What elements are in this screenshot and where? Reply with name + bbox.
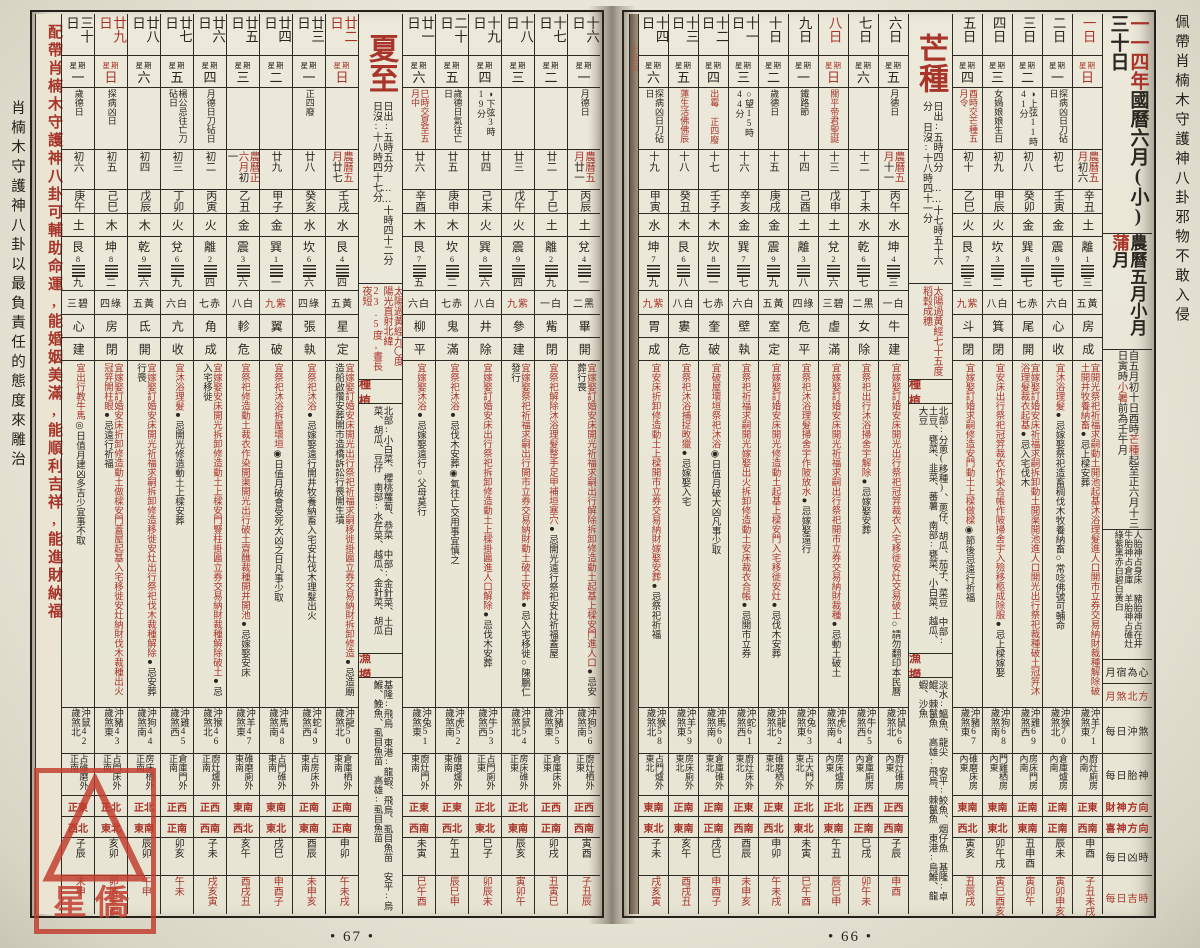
lunar-day: 初九	[992, 151, 1003, 172]
solar-term-block: 夏至日出:五時五分 ……十時四十二分 日沒:十八時四十七分太陽過黃經九〇度 陽光…	[358, 14, 402, 914]
fishing-header: 漁撈	[909, 654, 952, 678]
weekday-cell: 星期三	[729, 56, 758, 88]
ji-text: ●忌上樑嫁娶	[993, 620, 1003, 678]
jianchu-cell: 開	[128, 338, 160, 361]
trigram-name: 震	[237, 238, 249, 255]
bad-hours-cell: 寅酉	[568, 838, 600, 876]
wealth-god-cell: 正北	[789, 796, 818, 817]
trigram-sub-number: 七	[1023, 279, 1033, 289]
extra-note-text: ◎日值月建凶多吉少宜事不取	[74, 420, 84, 545]
nine-star-cell: 七赤	[436, 291, 468, 315]
fetal-god-cell: 倉庫門外正南	[161, 754, 193, 796]
ji-text: ●忌嫁娶安床	[239, 620, 249, 678]
weekday-label: 星期	[735, 60, 752, 71]
solar-term-times: 日出:五時四分 ……十七時五十六分 日沒:十八時四十一分	[920, 101, 941, 271]
trigram-cell: 兌2六	[819, 237, 848, 291]
header-label-column: 一一四年國曆六月(小)三十日農曆五月小月蒲月自五月初十日酉時芒種起至正六月十三日…	[1102, 14, 1152, 914]
weekday-label: 星期	[1049, 60, 1066, 71]
national-calendar-title: 一一四年國曆六月(小)三十日	[1103, 14, 1152, 234]
jianchu-cell: 成	[1073, 338, 1102, 361]
row-label: 財神方向	[1103, 796, 1152, 817]
bad-hours-cell: 巳子	[469, 838, 501, 876]
element-cell: 土	[789, 214, 818, 237]
mansion-cell: 氐	[128, 315, 160, 338]
day-number-cell: 十六日	[568, 14, 600, 56]
lunar-month-title: 農曆五月小月蒲月	[1103, 234, 1152, 350]
wealth-god-value: 東南	[644, 799, 664, 814]
trigram-number: 6	[681, 255, 685, 264]
nine-star-cell: 一白	[879, 291, 908, 315]
trigram-number: 2	[831, 255, 835, 264]
bad-hours-cell: 未寅	[789, 838, 818, 876]
festival-note-cell: 鐵路節	[789, 88, 818, 150]
mansion-cell: 星	[326, 315, 358, 338]
weekday-label: 星期	[1019, 60, 1036, 71]
joy-god-value: 東北	[644, 820, 664, 835]
fetal-god-cell: 倉庫爐房內南	[1043, 754, 1072, 796]
day-column: 二日星期一探病凶日刀砧日初七壬寅金震9七六白心收宜沐浴理髮●忌嫁娶祭祀造畜稠伐木…	[1042, 14, 1072, 914]
trigram-cell: 坎3二	[983, 237, 1012, 291]
wealth-god-value: 正西	[574, 799, 594, 814]
joy-god-value: 西北	[958, 820, 978, 835]
trigram-name: 艮	[72, 238, 84, 255]
nine-star-cell: 二黑	[849, 291, 878, 315]
wealth-god-value: 正東	[1078, 799, 1098, 814]
element-cell: 火	[953, 214, 982, 237]
hexagram-icon	[237, 265, 250, 278]
joy-god-value: 西北	[764, 820, 784, 835]
weekday-label: 星期	[136, 60, 153, 71]
joy-god-cell: 東北	[983, 817, 1012, 838]
clash-cell: 沖鼠42歲煞北	[62, 708, 94, 754]
mansion-cell: 心	[62, 315, 94, 338]
joy-god-value: 正南	[541, 820, 561, 835]
element-cell: 火	[469, 214, 501, 237]
ji-text: ●忌入宅伐木	[1019, 430, 1029, 488]
clash-cell: 沖豬43歲煞東	[95, 708, 127, 754]
weekday-label: 星期	[765, 60, 782, 71]
element-cell: 火	[502, 214, 534, 237]
row-label: 每日胎神	[1103, 754, 1152, 796]
term-range-note: 自五月初十日酉時芒種起至正六月十三日寅時小暑前為壬午月	[1103, 350, 1152, 530]
ganzhi-cell: 丙寅	[194, 190, 226, 214]
weekday-label: 星期	[103, 60, 120, 71]
day-column: 九日星期一鐵路節十四己酉土離3八四綠危平宜祭祀沐浴理髮掃舍宇作陂放水●忌嫁娶遠行…	[788, 14, 818, 914]
ganzhi-cell: 辛丑	[1073, 190, 1102, 214]
bad-hours-cell: 寅亥	[953, 838, 982, 876]
trigram-cell: 震9四	[502, 237, 534, 291]
ji-text: ●忌祭祀祈福	[649, 582, 659, 640]
festival-note-cell	[128, 88, 160, 150]
weekday-label: 星期	[543, 60, 560, 71]
clash-cell: 沖雞69歲煞西	[1013, 708, 1042, 754]
festival-note-cell: 探病凶日	[95, 88, 127, 150]
element-cell: 木	[699, 214, 728, 237]
lunar-date-cell: 初六	[62, 150, 94, 190]
joy-god-value: 西南	[200, 820, 220, 835]
weekday-cell: 星期三	[227, 56, 259, 88]
lunar-day: 廿七	[331, 162, 342, 183]
joy-god-cell: 西北	[759, 817, 788, 838]
good-hours-cell: 申酉子	[260, 876, 292, 918]
nine-star-value: 八白	[673, 295, 695, 310]
mansion-cell: 鬼	[436, 315, 468, 338]
day-column: 廿五日星期三農曆正六月初一乙丑金震3六八白軫危宜祭祀修造動土裁衣作染開渠開光出行…	[226, 14, 259, 914]
fetal-god-cell: 占門爐外東北	[639, 754, 668, 796]
joy-god-value: 東北	[988, 820, 1008, 835]
yi-text: 宜嫁娶訂婚安床開光修造動土起基上樑安門入宅移徙安灶	[769, 363, 779, 601]
trigram-cell: 坎6二	[436, 237, 468, 291]
element-cell: 金	[227, 214, 259, 237]
weekday-value: 一	[1051, 71, 1064, 84]
trigram-number: 8	[711, 255, 715, 264]
mansion-cell: 張	[293, 315, 325, 338]
hexagram-icon	[961, 265, 974, 278]
trigram-sub-number: 九	[649, 279, 659, 289]
fetal-god-cell: 碓磨栖外東北	[759, 754, 788, 796]
lunar-day: 初三	[172, 151, 183, 172]
trigram-name: 震	[1051, 238, 1063, 255]
day-number-cell: 廿七日	[161, 14, 193, 56]
trigram-cell: 艮8九	[62, 237, 94, 291]
trigram-number: 6	[175, 255, 179, 264]
ganzhi-cell: 乙丑	[227, 190, 259, 214]
bad-hours-cell: 戌巳	[699, 838, 728, 876]
weekday-cell: 星期一	[568, 56, 600, 88]
lunar-date-cell: 廿八	[293, 150, 325, 190]
good-hours-cell: 辰巳申	[436, 876, 468, 918]
day-number-cell: 十七日	[535, 14, 567, 56]
wealth-god-cell: 正南	[699, 796, 728, 817]
planting-header: 種植	[359, 380, 402, 404]
festival-note-cell	[326, 88, 358, 150]
good-hours-cell: 戌亥寅	[639, 876, 668, 918]
auspicious-cell: 宜嫁娶安床開光拆卸修造動土上樑安門豎柱掛匾立券交易納財裁種解除破土●忌入宅移徙	[194, 361, 226, 708]
weekday-cell: 星期日	[1073, 56, 1102, 88]
clash-cell: 沖猴46歲煞北	[194, 708, 226, 754]
nine-star-cell: 九紫	[502, 291, 534, 315]
jianchu-cell: 閉	[953, 338, 982, 361]
nine-star-cell: 六白	[403, 291, 435, 315]
wealth-god-cell: 正西	[535, 796, 567, 817]
nine-star-value: 二黑	[853, 295, 875, 310]
ji-text: ●忌嫁娶遠行	[799, 496, 809, 554]
yi-text: 宜祭祀沐浴理髮掃舍宇作陂放水	[799, 363, 809, 496]
ji-text: ●忌嫁娶安葬	[859, 477, 869, 535]
trigram-sub-number: 九	[172, 279, 182, 289]
lunar-date-cell: 初三	[161, 150, 193, 190]
day-column: 十一日星期三○望15時44分十六辛亥金巽7七六白壁執宜祭祀祈福求嗣開光嫁娶出火拆…	[728, 14, 758, 914]
yi-text: 宜嫁娶訂婚求嗣修造安門動土上樑做樑	[963, 363, 973, 525]
lunar-day: 十九	[648, 151, 659, 172]
mansion-cell: 房	[95, 315, 127, 338]
page-number-66: • 66 •	[828, 929, 873, 946]
weekday-label: 星期	[70, 60, 87, 71]
fetal-god-cell: 廚灶爐外正南	[194, 754, 226, 796]
nine-star-cell: 七赤	[194, 291, 226, 315]
ji-text: ●忌嫁娶入宅	[679, 449, 689, 507]
hexagram-icon	[336, 265, 349, 278]
clash-cell: 沖羊59歲煞東	[669, 708, 698, 754]
wealth-god-value: 正北	[824, 799, 844, 814]
nine-star-value: 八白	[232, 295, 254, 310]
lunar-day: 廿九	[271, 151, 282, 172]
nine-star-value: 六白	[733, 295, 755, 310]
trigram-cell: 艮4四	[326, 237, 358, 291]
lunar-day: 初六	[73, 151, 84, 172]
good-hours-cell: 午未	[161, 876, 193, 918]
joy-god-cell: 西南	[403, 817, 435, 838]
trigram-number: 7	[741, 255, 745, 264]
nine-star-value: 九紫	[265, 295, 287, 310]
clash-cell: 沖雞45歲煞西	[161, 708, 193, 754]
fetal-god-cell: 門雞栖房內東	[983, 754, 1012, 796]
trigram-number: 7	[651, 255, 655, 264]
trigram-sub-number: 七	[859, 279, 869, 289]
element-cell: 土	[819, 214, 848, 237]
right-margin-caption: 佩帶肖楠木守護神八卦邪物不敢入侵	[1171, 14, 1192, 326]
wealth-god-cell: 正西	[849, 796, 878, 817]
festival-note-cell: 蓮生活佛佛辰	[669, 88, 698, 150]
fetal-god-cell: 廚灶床外東北	[729, 754, 758, 796]
trigram-number: 2	[208, 255, 212, 264]
jianchu-cell: 開	[568, 338, 600, 361]
weekday-cell: 星期五	[161, 56, 193, 88]
jianchu-cell: 滿	[819, 338, 848, 361]
ji-text: ●忌嫁娶遠行開井牧養納畜入宅安灶伐木理髮出火	[305, 411, 315, 621]
nine-star-value: 四綠	[100, 295, 122, 310]
weekday-value: 五	[887, 71, 900, 84]
sun-longitude-note: 太陽過黃經七十五度 稻穀成穗	[909, 284, 952, 380]
auspicious-cell: 宜嫁娶訂婚安床開光祈福求嗣拆卸修造移徙安灶出行祭祀伐木裁種解除●忌安葬行喪	[128, 361, 160, 708]
joy-god-value: 東南	[674, 820, 694, 835]
nine-star-value: 八白	[987, 295, 1009, 310]
trigram-cell: 坎6六	[293, 237, 325, 291]
joy-god-value: 西北	[442, 820, 462, 835]
weekday-value: 五	[445, 71, 458, 84]
trigram-number: 1	[274, 255, 278, 264]
weekday-value: 日	[827, 71, 840, 84]
wealth-god-value: 東南	[266, 799, 286, 814]
yi-text: 宜嫁娶安床開光拆卸修造動土上樑安門豎柱掛匾立券交易納財裁種解除破土	[211, 363, 221, 677]
weekday-cell: 星期五	[879, 56, 908, 88]
lunar-day: 初八	[1022, 151, 1033, 172]
joy-god-value: 東南	[824, 820, 844, 835]
clash-cell: 沖狗68歲煞南	[983, 708, 1012, 754]
lunar-day: 廿八	[304, 151, 315, 172]
joy-god-value: 西南	[884, 820, 904, 835]
fetal-god-cell: 廚灶廁房內南	[1073, 754, 1102, 796]
lunar-date-cell: 農曆五月廿一	[568, 150, 600, 190]
day-column: 十四日星期六探病凶日刀砧日十九甲寅水坤7九九紫胃成宜安床折卸修造動土上樑開市立券…	[638, 14, 668, 914]
festival-note-cell: 歲德日氣往亡日	[436, 88, 468, 150]
wealth-god-cell: 正東	[1073, 796, 1102, 817]
trigram-cell: 巽8七	[1013, 237, 1042, 291]
wealth-god-cell: 正南	[1043, 796, 1072, 817]
ji-text: ●忌開市立券	[739, 601, 749, 659]
joy-god-cell: 西北	[953, 817, 982, 838]
wealth-god-value: 正西	[854, 799, 874, 814]
nine-star-cell: 一白	[535, 291, 567, 315]
day-number-cell: 廿五日	[227, 14, 259, 56]
hexagram-icon	[1021, 265, 1034, 278]
weekday-value: 六	[137, 71, 150, 84]
lunar-day: 廿二	[546, 151, 557, 172]
day-number-cell: 廿二日	[326, 14, 358, 56]
fishing-header: 漁撈	[359, 654, 402, 678]
joy-god-cell: 正南	[1043, 817, 1072, 838]
ganzhi-cell: 甲子	[260, 190, 292, 214]
ganzhi-cell: 戊午	[502, 190, 534, 214]
almanac-page-66: 一一四年國曆六月(小)三十日農曆五月小月蒲月自五月初十日酉時芒種起至正六月十三日…	[622, 10, 1156, 918]
weekday-label: 星期	[510, 60, 527, 71]
joy-god-value: 西南	[409, 820, 429, 835]
day-column: 十九日星期四◑下弦3時19分廿四己未火巽8六八白井除宜嫁娶訂婚安床出行祭祀拆卸修…	[468, 14, 501, 914]
nine-star-cell: 九紫	[639, 291, 668, 315]
good-hours-cell: 巳午酉	[789, 876, 818, 918]
weekday-label: 星期	[444, 60, 461, 71]
weekday-label: 星期	[959, 60, 976, 71]
element-cell: 水	[849, 214, 878, 237]
fetal-god-cell: 碓磨爐外東南	[436, 754, 468, 796]
mansion-cell: 壁	[729, 315, 758, 338]
jianchu-cell: 滿	[436, 338, 468, 361]
good-hours-cell: 丑寅巳	[535, 876, 567, 918]
weekday-value: 四	[707, 71, 720, 84]
joy-god-cell: 西北	[227, 817, 259, 838]
trigram-sub-number: 六	[238, 279, 248, 289]
lunar-date-cell: 農曆五月初六	[1073, 150, 1102, 190]
day-number-cell: 十九日	[469, 14, 501, 56]
auspicious-cell: 宜嫁娶訂婚安床開光祈福求嗣出行解除拆卸修造動土起基上樑安門進人口●忌安葬行喪	[568, 361, 600, 708]
yi-text: 宜安床出行祭祀冠笄裁衣作染合帳作陂掃舍宇入殮移柩成除服	[993, 363, 1003, 620]
mansion-cell: 觜	[535, 315, 567, 338]
trigram-sub-number: 九	[73, 279, 83, 289]
trigram-name: 兌	[578, 238, 590, 255]
nine-star-value: 一白	[883, 295, 905, 310]
bad-hours-cell: 午丑	[436, 838, 468, 876]
lunar-date-cell: 十九	[639, 150, 668, 190]
good-hours-cell: 未申亥	[729, 876, 758, 918]
weekday-label: 星期	[477, 60, 494, 71]
yi-text: 宜祭祀解除沐浴理髮整手足甲補垣塞穴	[547, 363, 557, 525]
lunar-date-cell: 十四	[789, 150, 818, 190]
weekday-label: 星期	[989, 60, 1006, 71]
weekday-label: 星期	[576, 60, 593, 71]
solar-term-title: 芒種日出:五時四分 ……十七時五十六分 日沒:十八時四十一分	[909, 14, 952, 284]
trigram-number: 1	[1085, 255, 1089, 264]
lunar-day: 廿五	[447, 151, 458, 172]
solar-term-title: 夏至日出:五時五分 ……十時四十二分 日沒:十八時四十七分	[359, 14, 402, 284]
bad-hours-cell: 子未	[194, 838, 226, 876]
hexagram-icon	[647, 265, 660, 278]
nine-star-cell: 二黑	[568, 291, 600, 315]
clash-cell: 沖羊71歲煞東	[1073, 708, 1102, 754]
lunar-day: 十一	[883, 162, 894, 183]
festival-note-cell: 月德日	[568, 88, 600, 150]
trigram-cell: 艮7三	[953, 237, 982, 291]
fetal-god-cell: 碓磨廁外東南	[227, 754, 259, 796]
fetal-god-cell: 廚灶碓房內東	[879, 754, 908, 796]
trigram-sub-number: 六	[829, 279, 839, 289]
weekday-cell: 星期一	[789, 56, 818, 88]
trigram-sub-number: 九	[546, 279, 556, 289]
extra-note-text: ◉日值月破大凶凡事少取	[709, 449, 719, 555]
festival-note-cell: 歲德日	[759, 88, 788, 150]
weekday-label: 星期	[1079, 60, 1096, 71]
sun-longitude-note: 太陽過黃經九〇度 陽光直射北緯23.5度,晝長夜短	[359, 284, 402, 380]
nine-star-value: 九紫	[957, 295, 979, 310]
weekday-value: 一	[302, 71, 315, 84]
weekday-cell: 星期一	[293, 56, 325, 88]
day-number-cell: 七日	[849, 14, 878, 56]
nine-star-value: 五黃	[133, 295, 155, 310]
hexagram-icon	[479, 265, 492, 278]
trigram-number: 3	[801, 255, 805, 264]
good-hours-cell: 巳午酉	[403, 876, 435, 918]
trigram-name: 乾	[857, 238, 869, 255]
auspicious-cell: 宜祭祀出行沐浴掃舍宇解除●忌嫁娶安葬	[849, 361, 878, 708]
ganzhi-cell: 丁未	[849, 190, 878, 214]
clash-cell: 沖豬55歲煞東	[535, 708, 567, 754]
trigram-name: 巽	[479, 238, 491, 255]
ganzhi-cell: 戊辰	[128, 190, 160, 214]
day-column: 四日星期三女媧娘娘生日初九甲辰火坎3二八白箕閉宜安床出行祭祀冠笄裁衣作染合帳作陂…	[982, 14, 1012, 914]
weekday-cell: 星期四	[194, 56, 226, 88]
nine-star-cell: 六白	[729, 291, 758, 315]
mansion-cell: 井	[469, 315, 501, 338]
weekday-cell: 星期二	[759, 56, 788, 88]
nine-star-value: 六白	[1047, 295, 1069, 310]
hexagram-icon	[512, 265, 525, 278]
auspicious-cell: 宜嫁娶訂婚安床開光祈福求嗣出行祭祀開市立券交易納財裁種●忌動土破土	[819, 361, 848, 708]
joy-god-cell: 正南	[161, 817, 193, 838]
fetal-god-cell: 廚灶門外東南	[403, 754, 435, 796]
element-cell: 土	[568, 214, 600, 237]
day-column: 六日星期五月德日農曆五月十一丙午水坤4三一白牛建宜嫁娶訂婚安床開光出行祭祀冠笄裁…	[878, 14, 908, 914]
auspicious-cell: 宜祭祀沐浴理髮掃舍宇作陂放水●忌嫁娶遠行	[789, 361, 818, 708]
day-number-cell: 五日	[953, 14, 982, 56]
trigram-name: 乾	[138, 238, 150, 255]
auspicious-cell: 宜祭祀沐浴●忌伐木安葬◉氣往亡交用事宜慎之	[436, 361, 468, 708]
clash-cell: 沖牛65歲煞西	[849, 708, 878, 754]
weekday-value: 三	[236, 71, 249, 84]
ganzhi-cell: 庚戌	[759, 190, 788, 214]
wealth-god-value: 正北	[794, 799, 814, 814]
good-hours-cell: 辰巳申	[819, 876, 848, 918]
wealth-god-value: 正西	[884, 799, 904, 814]
mansion-cell: 胃	[639, 315, 668, 338]
jianchu-cell: 收	[1043, 338, 1072, 361]
festival-note-cell: ◑下弦3時19分	[469, 88, 501, 150]
day-number-cell: 四日	[983, 14, 1012, 56]
festival-note-cell: 關平帝君聖誕	[819, 88, 848, 150]
weekday-value: 六	[412, 71, 425, 84]
nine-star-value: 七赤	[1017, 295, 1039, 310]
wealth-god-cell: 正東	[403, 796, 435, 817]
element-cell: 火	[161, 214, 193, 237]
lunar-day: 初十	[962, 151, 973, 172]
weekday-cell: 星期四	[699, 56, 728, 88]
extra-note-text: ◉節後忌遠行祈福	[963, 525, 973, 603]
joy-god-value: 正南	[167, 820, 187, 835]
trigram-number: 9	[516, 255, 520, 264]
lunar-day: 初五	[106, 151, 117, 172]
mansion-cell: 畢	[568, 315, 600, 338]
day-column: 十六日星期一月德日農曆五月廿一丙辰土兌4一二黑畢開宜嫁娶訂婚安床開光祈福求嗣出行…	[567, 14, 600, 914]
trigram-number: 9	[142, 255, 146, 264]
row-label: 月宿為心	[1103, 660, 1152, 684]
